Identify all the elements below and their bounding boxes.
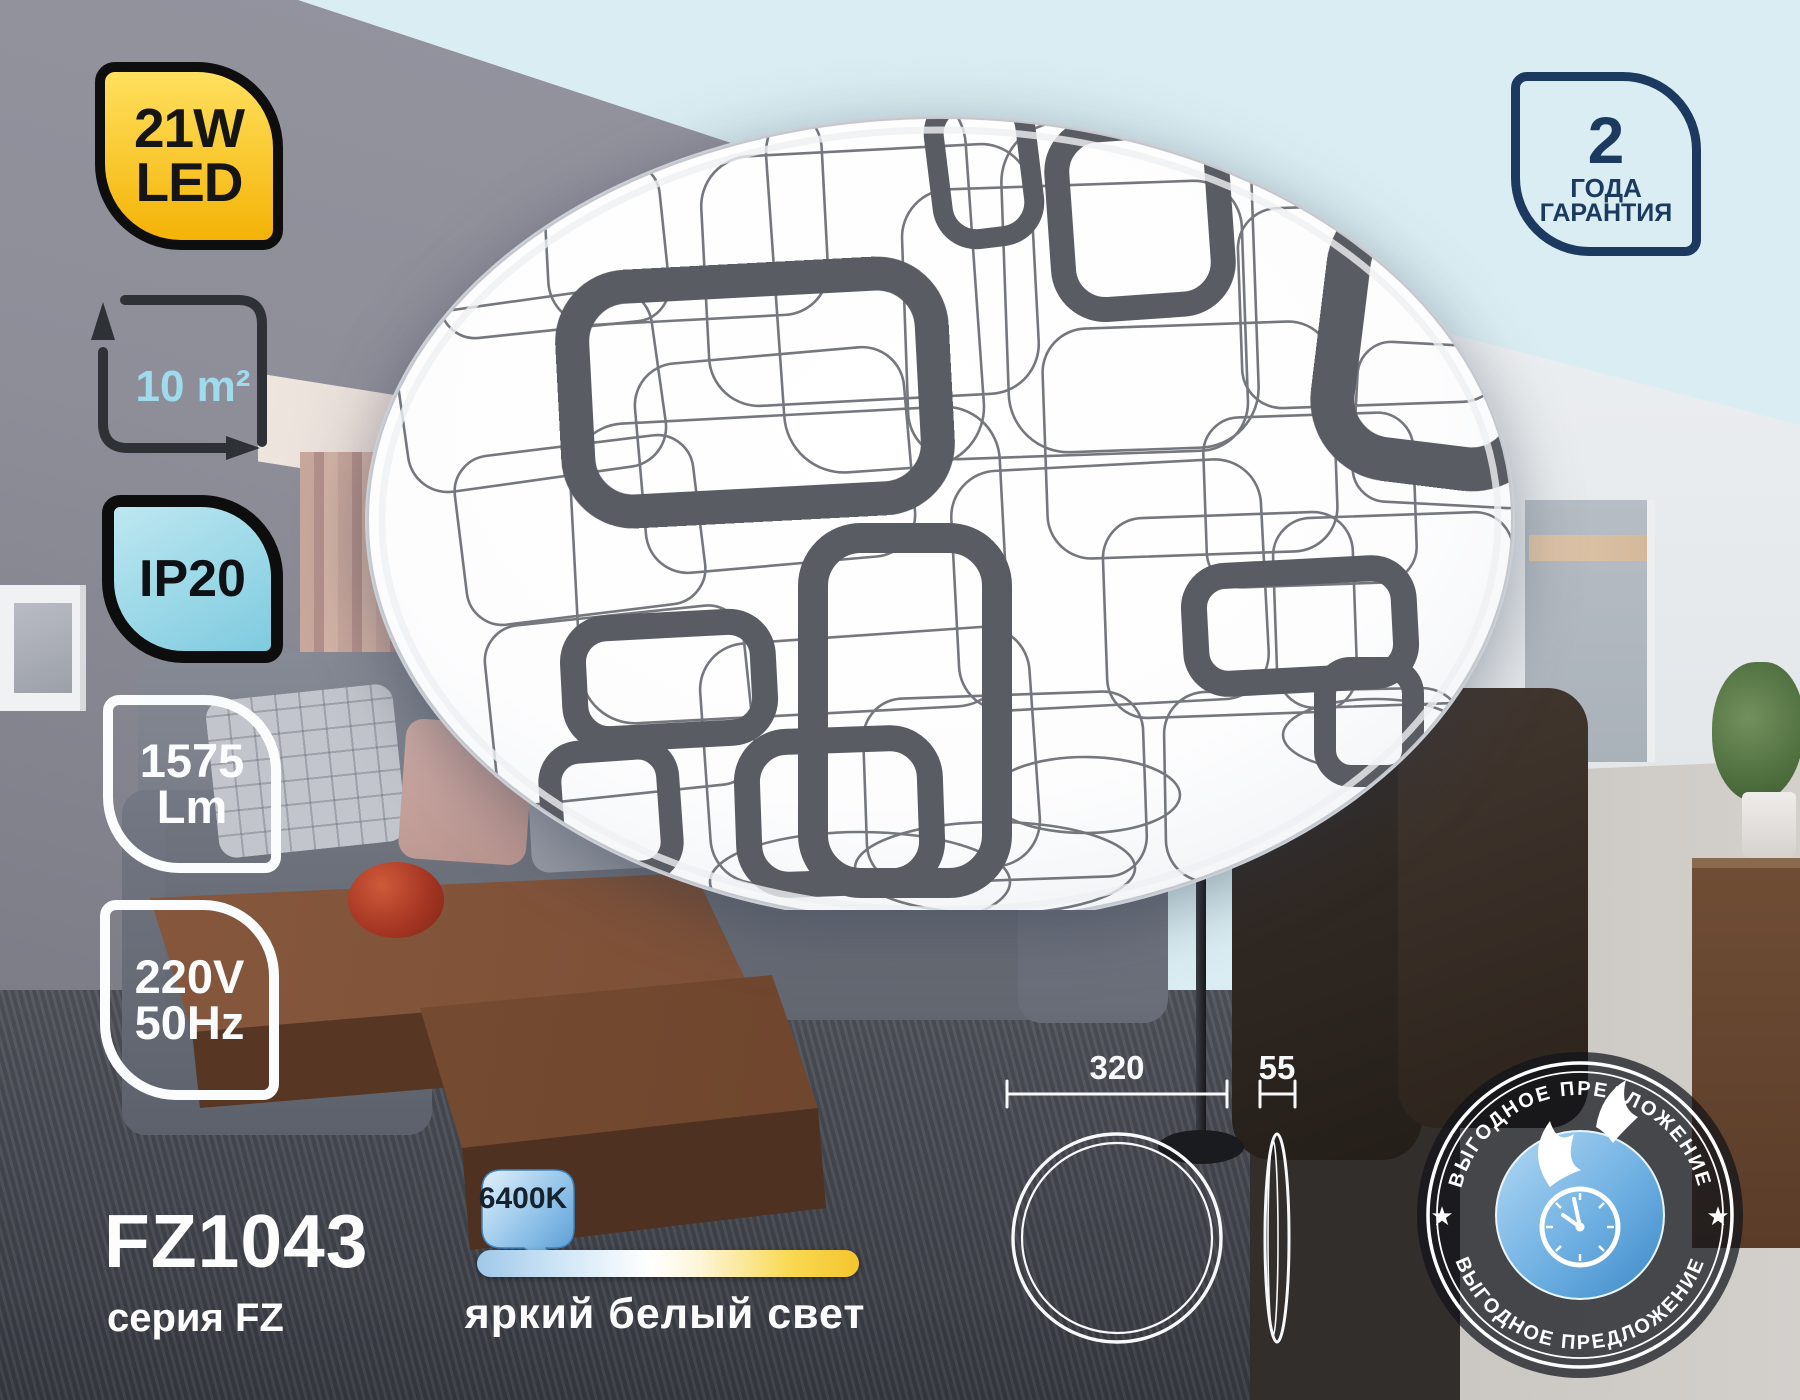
plant-pot — [1742, 792, 1796, 862]
temperature-gradient-bar — [477, 1250, 859, 1277]
lumens-value: 1575 — [140, 738, 245, 784]
temperature-value: 6400K — [470, 1182, 576, 1216]
star-icon: ★ — [1430, 1201, 1453, 1231]
warranty-word2: ГАРАНТИЯ — [1540, 201, 1672, 226]
promo-stamp: ВЫГОДНОЕ ПРЕДЛОЖЕНИЕ ВЫГОДНОЕ ПРЕДЛОЖЕНИ… — [1400, 1035, 1760, 1395]
coverage-area-value: 10 m² — [118, 362, 268, 412]
voltage-value: 220V — [135, 954, 245, 1000]
ip-rating-badge: IP20 — [102, 495, 283, 663]
frequency-value: 50Hz — [135, 1000, 245, 1046]
warranty-badge: 2 ГОДА ГАРАНТИЯ — [1511, 72, 1701, 256]
lumens-unit: Lm — [157, 784, 228, 830]
dimensions-diagram: 320 55 — [955, 1035, 1375, 1365]
height-value: 55 — [1259, 1049, 1296, 1086]
product-card: 21W LED 10 m² IP20 1575 Lm 220V 50Hz 2 Г… — [0, 0, 1800, 1400]
promo-inner-circle — [1496, 1131, 1664, 1299]
model-name: FZ1043 — [104, 1198, 368, 1284]
ceiling-lamp-image — [340, 90, 1540, 910]
lumens-badge: 1575 Lm — [103, 695, 281, 873]
series-label: серия FZ — [107, 1296, 284, 1341]
room-mirror-light — [1529, 535, 1647, 561]
voltage-badge: 220V 50Hz — [100, 900, 279, 1100]
room-picture-art — [14, 603, 72, 693]
ip-rating-value: IP20 — [139, 554, 246, 605]
light-description: яркий белый свет — [445, 1290, 885, 1339]
power-watts: 21W — [134, 102, 244, 156]
warranty-word1: ГОДА — [1570, 176, 1642, 201]
warranty-years: 2 — [1588, 107, 1625, 173]
power-led: LED — [136, 156, 243, 210]
star-icon: ★ — [1706, 1201, 1729, 1231]
diameter-value: 320 — [1089, 1049, 1144, 1086]
plant — [1712, 662, 1800, 802]
power-badge: 21W LED — [95, 62, 283, 250]
